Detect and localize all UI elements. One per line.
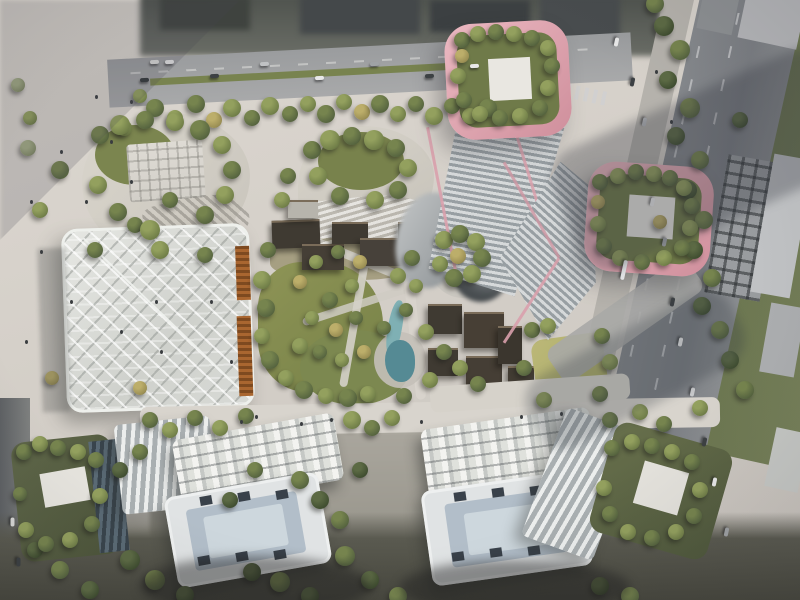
masterplan-aerial-rendering — [0, 0, 800, 600]
vignette — [0, 0, 800, 600]
